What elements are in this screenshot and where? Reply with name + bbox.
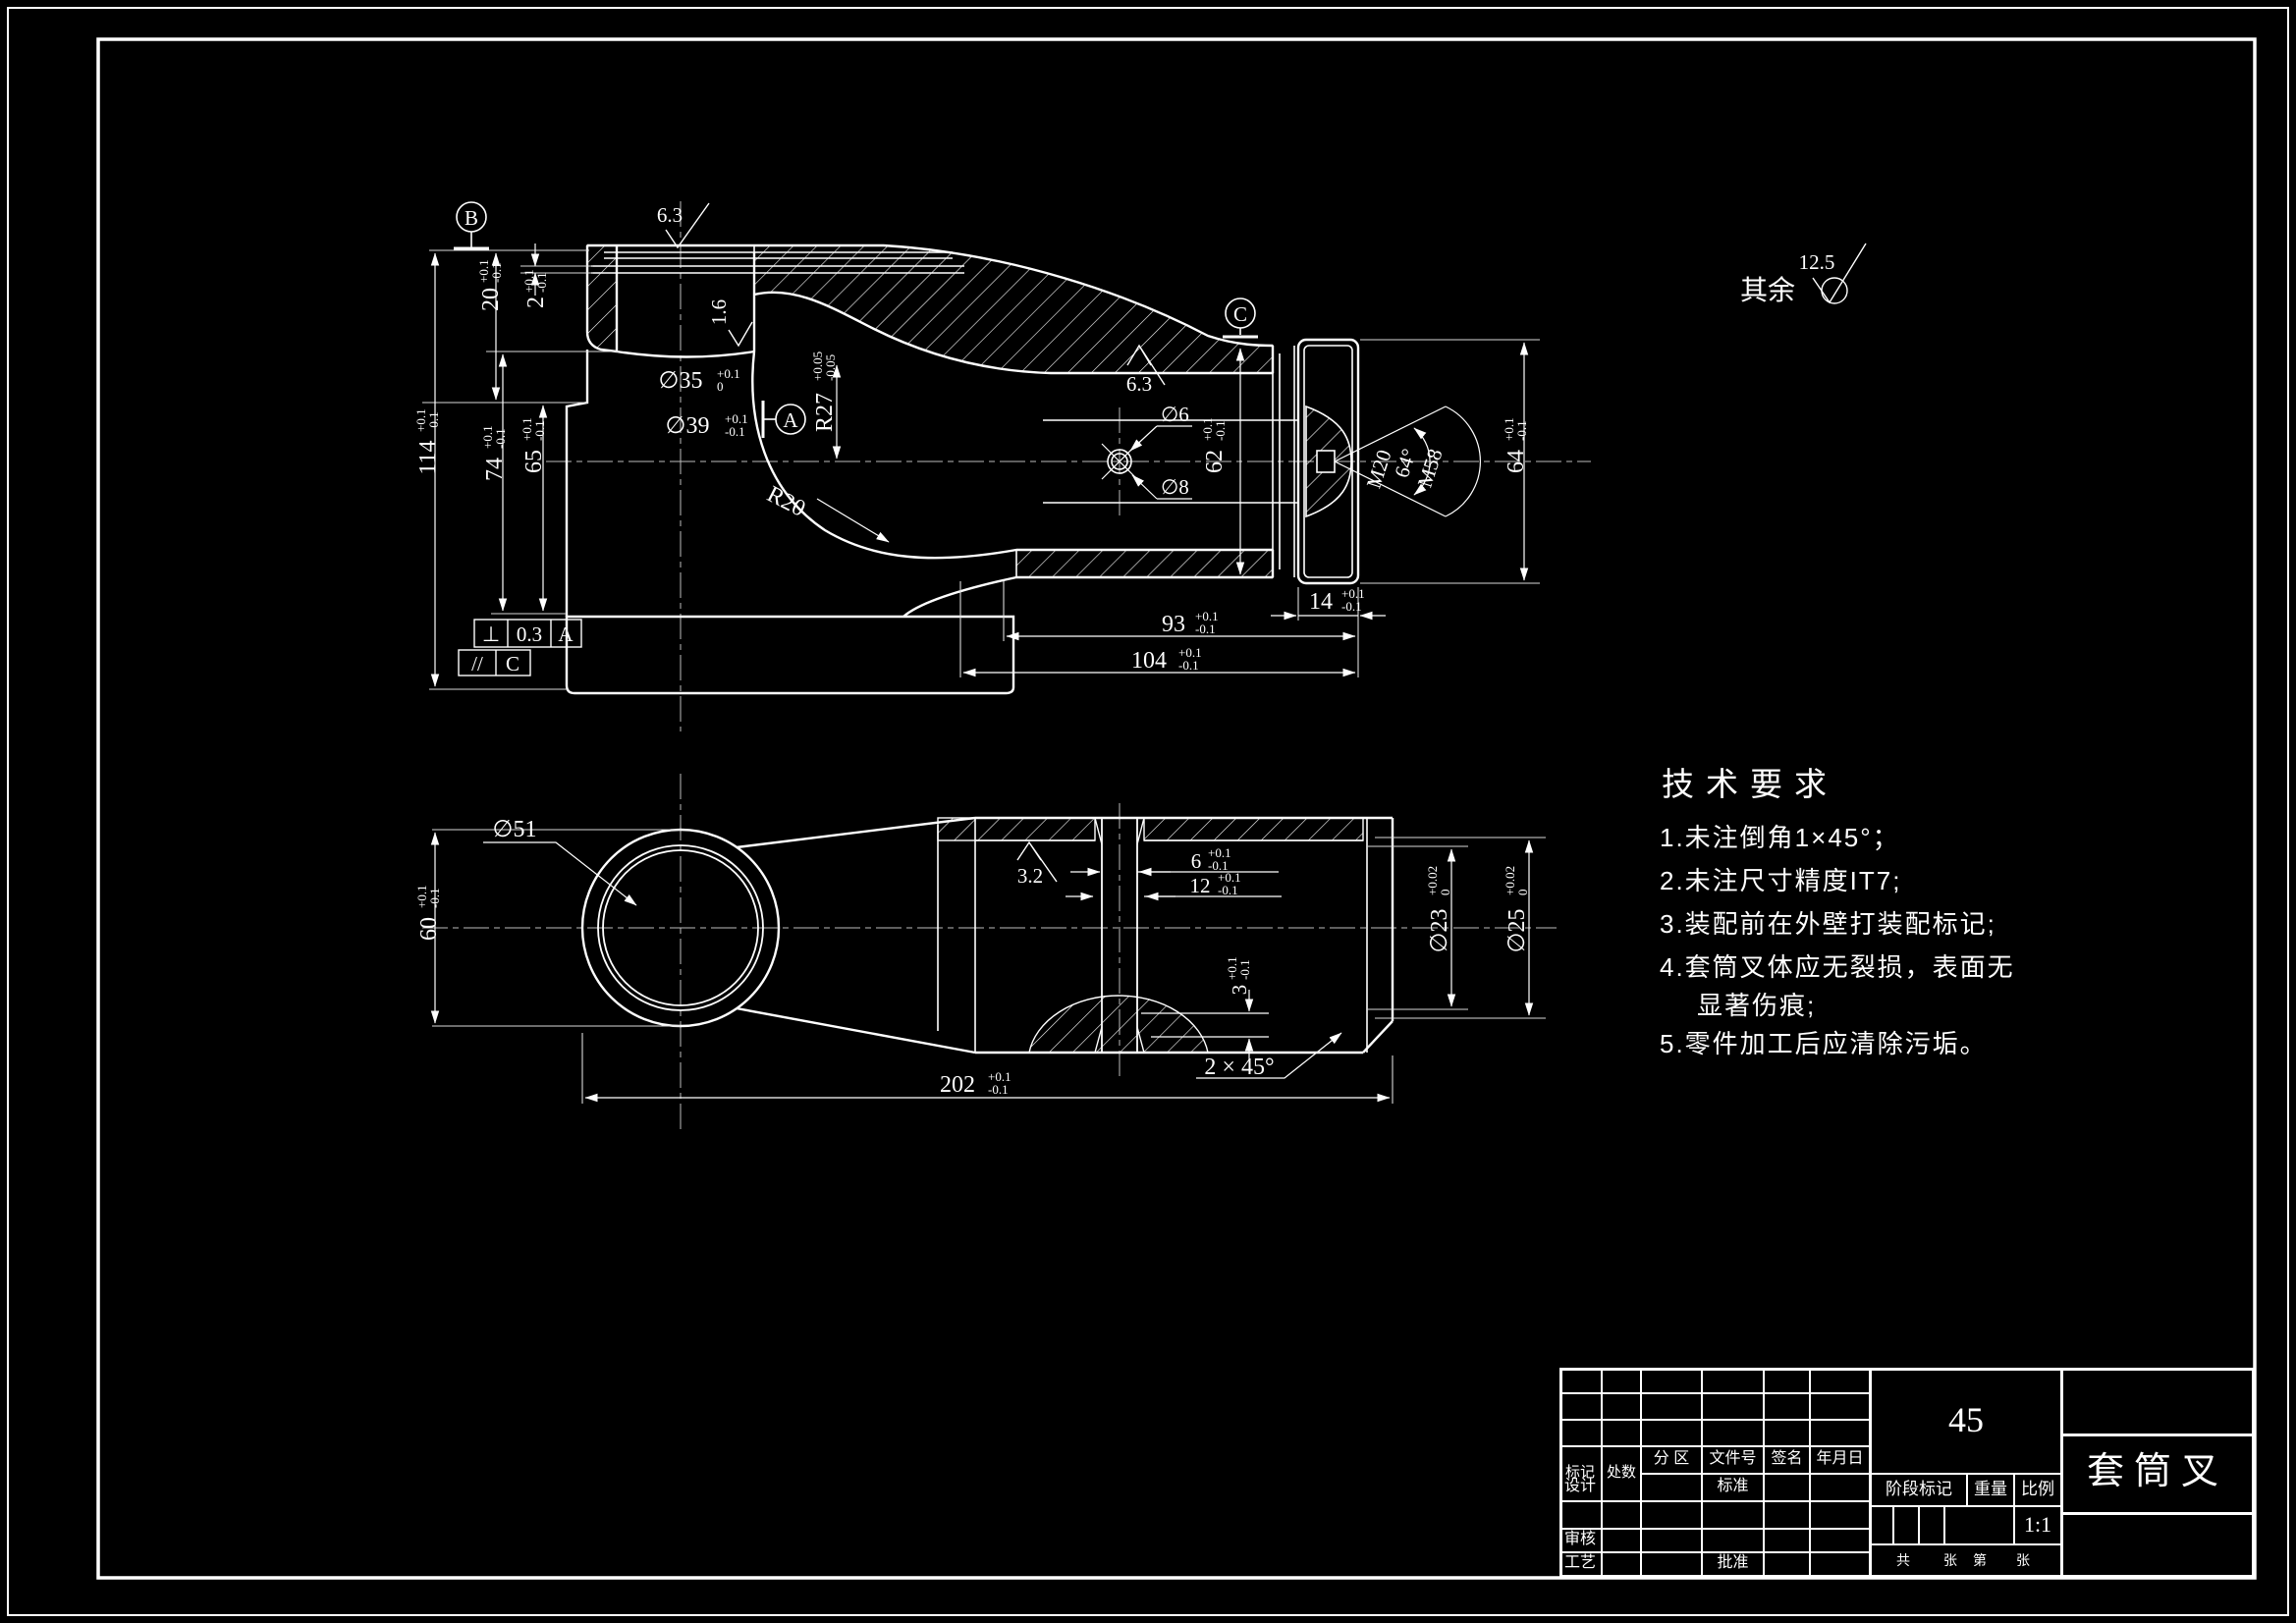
dim-104-tol-minus: -0.1 bbox=[1178, 658, 1199, 673]
tech-requirement-line: 显著伤痕; bbox=[1697, 986, 1816, 1022]
dim-20-tol-minus: -0.1 bbox=[489, 262, 504, 283]
dim-74-tol-minus: -0.1 bbox=[493, 428, 508, 449]
roughness-63a-value: 6.3 bbox=[657, 203, 683, 227]
dim-d39: ∅39 bbox=[666, 413, 710, 439]
dimension-lines bbox=[435, 243, 1529, 1098]
dim-20: 20 bbox=[478, 288, 504, 311]
tb-scale-value: 1:1 bbox=[2015, 1505, 2060, 1543]
dim-r20: R20 bbox=[763, 481, 809, 521]
tb-design-label: 设计 bbox=[1559, 1473, 1601, 1500]
tech-requirements-title: 技术要求 bbox=[1662, 758, 1838, 805]
tb-material: 45 bbox=[1872, 1368, 2060, 1473]
bottom-view-outline bbox=[582, 818, 1393, 1053]
tb-part-name: 套筒叉 bbox=[2063, 1434, 2252, 1512]
dim-104: 104 bbox=[1131, 648, 1167, 674]
tb-sheets-label: 张 bbox=[1941, 1545, 1960, 1575]
dim-114: 114 bbox=[415, 440, 441, 474]
title-block: 标记 处数 分 区 文件号 签名 年月日 设计 标准 审核 工艺 批准 45 阶… bbox=[1559, 1368, 2255, 1578]
tb-check-label: 审核 bbox=[1559, 1528, 1601, 1551]
dim-74: 74 bbox=[482, 458, 508, 481]
dim-12-slot: 12 bbox=[1190, 874, 1211, 897]
dim-r27: R27 bbox=[812, 393, 838, 432]
sheet-roughness-note: 其余 12.5 bbox=[1740, 250, 1834, 305]
tb-weight-label: 重量 bbox=[1968, 1473, 2013, 1505]
roughness-16-icon bbox=[729, 322, 752, 346]
dim-chamfer: 2 × 45° bbox=[1204, 1055, 1274, 1080]
dim-d25: ∅25 bbox=[1504, 909, 1530, 953]
dim-202-tol-minus: -0.1 bbox=[988, 1082, 1009, 1097]
cad-drawing-sheet: B 6.3 20 +0.1 -0.1 2 +0.1 -0.1 1.6 ∅35 +… bbox=[0, 0, 2296, 1623]
dim-3-tol-minus: -0.1 bbox=[1237, 959, 1252, 980]
dim-202: 202 bbox=[940, 1072, 975, 1098]
dim-2: 2 bbox=[523, 297, 549, 308]
fcf-par-symbol: // bbox=[471, 652, 483, 676]
tech-requirement-line: 1.未注倒角1×45°； bbox=[1660, 818, 1900, 854]
dim-d35-tol-minus: 0 bbox=[717, 379, 724, 394]
bottom-view-hatching bbox=[938, 818, 1363, 1053]
dim-d8-hole: ∅8 bbox=[1161, 475, 1189, 499]
roughness-32-value: 3.2 bbox=[1017, 864, 1043, 888]
dim-14-tol-minus: -0.1 bbox=[1341, 599, 1362, 614]
tech-requirement-line: 5.零件加工后应清除污垢。 bbox=[1660, 1024, 1988, 1060]
tb-count-label: 处数 bbox=[1603, 1445, 1640, 1500]
tech-requirement-line: 2.未注尺寸精度IT7; bbox=[1660, 861, 1901, 897]
dim-62: 62 bbox=[1202, 450, 1228, 473]
tb-fileno-label: 文件号 bbox=[1703, 1445, 1763, 1473]
default-roughness-value: 12.5 bbox=[1799, 250, 1835, 274]
tb-sheets2-label: 张 bbox=[2013, 1545, 2033, 1575]
dim-64: 64 bbox=[1503, 450, 1529, 473]
fcf-perp-datum: A bbox=[558, 622, 574, 646]
dim-d25-tol-minus: 0 bbox=[1515, 890, 1530, 896]
fcf-par-datum: C bbox=[506, 652, 519, 676]
tb-zone-label: 分 区 bbox=[1642, 1445, 1701, 1473]
tb-page-label: 第 bbox=[1970, 1545, 1990, 1575]
extension-lines bbox=[422, 250, 1546, 1104]
dim-d51: ∅51 bbox=[493, 817, 537, 842]
tb-stage-mark-label: 阶段标记 bbox=[1872, 1473, 1966, 1505]
tb-scale-label: 比例 bbox=[2015, 1473, 2060, 1505]
default-roughness-label: 其余 bbox=[1740, 275, 1795, 305]
dim-d23: ∅23 bbox=[1427, 909, 1452, 953]
dim-62-tol-minus: -0.1 bbox=[1213, 420, 1228, 441]
roughness-16-value: 1.6 bbox=[707, 299, 731, 325]
fcf-perp-value: 0.3 bbox=[517, 622, 542, 646]
tb-standard-label: 标准 bbox=[1703, 1473, 1763, 1500]
dim-64-tol-minus: -0.1 bbox=[1514, 420, 1529, 441]
dim-d35: ∅35 bbox=[659, 368, 703, 394]
datum-a-label: A bbox=[783, 408, 798, 432]
dim-14: 14 bbox=[1309, 589, 1333, 615]
dim-114-tol-minus: -0.1 bbox=[426, 411, 441, 432]
dim-93: 93 bbox=[1162, 612, 1185, 637]
dim-d23-tol-minus: 0 bbox=[1438, 890, 1452, 896]
dim-60-tol-minus: -0.1 bbox=[427, 888, 442, 908]
dim-d39-tol-minus: -0.1 bbox=[725, 424, 745, 439]
dim-2-tol-minus: -0.1 bbox=[534, 272, 549, 293]
tech-requirement-line: 3.装配前在外壁打装配标记; bbox=[1660, 904, 1996, 941]
tb-process-label: 工艺 bbox=[1559, 1551, 1601, 1575]
dim-r27-tol-minus: -0.05 bbox=[823, 354, 838, 381]
fcf-perp-symbol: ⊥ bbox=[482, 622, 500, 646]
bottom-view-labels: ∅51 60 +0.1 -0.1 3.2 6 +0.1 -0.1 12 +0.1… bbox=[414, 817, 1530, 1098]
tb-signature-label: 签名 bbox=[1765, 1445, 1809, 1473]
dim-3: 3 bbox=[1228, 985, 1251, 996]
dim-65-tol-minus: -0.1 bbox=[532, 420, 547, 441]
datum-b-label: B bbox=[465, 206, 478, 230]
tech-requirement-line: 4.套筒叉体应无裂损，表面无 bbox=[1660, 947, 2015, 984]
roughness-63b-value: 6.3 bbox=[1126, 372, 1152, 396]
tb-date-label: 年月日 bbox=[1811, 1445, 1869, 1473]
dim-d6-hole: ∅6 bbox=[1161, 403, 1189, 426]
top-view-hatching bbox=[587, 245, 1351, 577]
dim-65: 65 bbox=[521, 450, 547, 473]
dim-12-slot-tol-minus: -0.1 bbox=[1218, 883, 1238, 897]
tb-approve-label: 批准 bbox=[1703, 1551, 1763, 1575]
tb-total-label: 共 bbox=[1893, 1545, 1913, 1575]
dim-93-tol-minus: -0.1 bbox=[1195, 622, 1216, 636]
fcf-parallelism-frame bbox=[459, 650, 530, 676]
datum-c-label: C bbox=[1233, 302, 1247, 326]
dim-6-slot: 6 bbox=[1191, 849, 1202, 873]
dim-60: 60 bbox=[416, 917, 442, 941]
